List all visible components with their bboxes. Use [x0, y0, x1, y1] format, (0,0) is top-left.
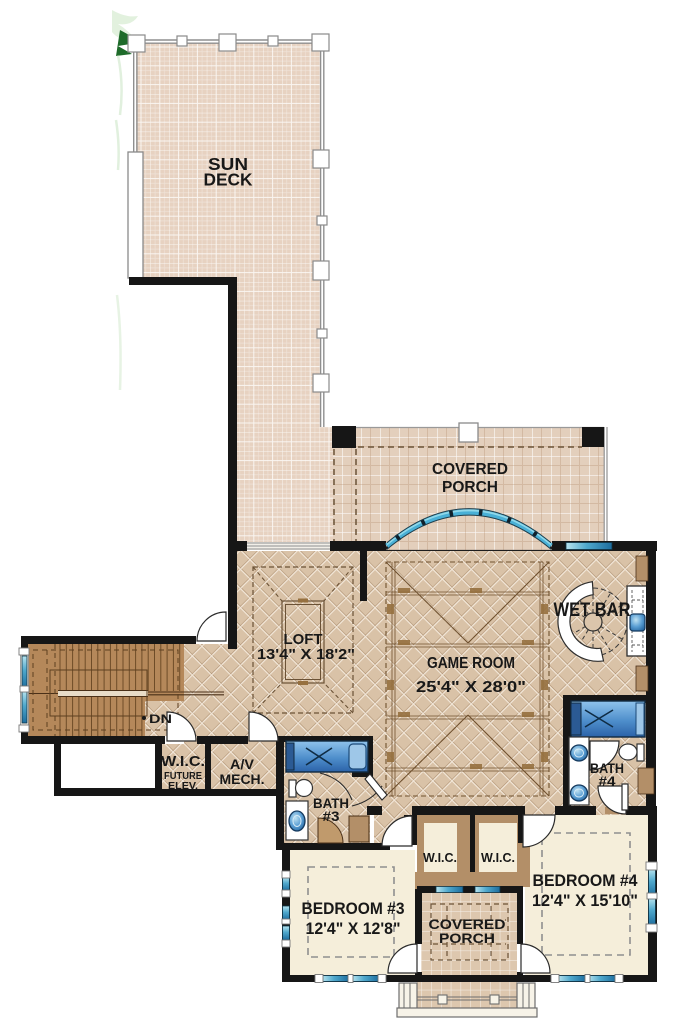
svg-text:COVERED: COVERED: [432, 461, 508, 478]
svg-text:12'4" X 15'10": 12'4" X 15'10": [532, 892, 638, 910]
svg-text:#4: #4: [599, 774, 617, 789]
svg-text:#3: #3: [323, 809, 341, 824]
svg-text:A/V: A/V: [230, 756, 255, 772]
svg-text:BEDROOM #4: BEDROOM #4: [533, 872, 639, 890]
svg-text:13'4" X 18'2": 13'4" X 18'2": [257, 646, 355, 663]
svg-text:DN: DN: [149, 712, 172, 726]
svg-text:WET BAR: WET BAR: [554, 600, 631, 621]
svg-text:W.I.C.: W.I.C.: [161, 753, 205, 770]
svg-text:W.I.C.: W.I.C.: [481, 850, 515, 865]
svg-text:GAME ROOM: GAME ROOM: [427, 655, 515, 672]
svg-text:MECH.: MECH.: [220, 771, 265, 787]
svg-text:W.I.C.: W.I.C.: [423, 850, 457, 865]
svg-text:PORCH: PORCH: [439, 930, 495, 946]
svg-text:25'4" X 28'0": 25'4" X 28'0": [416, 679, 526, 696]
svg-text:12'4" X 12'8": 12'4" X 12'8": [306, 920, 401, 938]
svg-text:DECK: DECK: [204, 170, 253, 190]
svg-text:BEDROOM #3: BEDROOM #3: [302, 900, 405, 918]
svg-text:PORCH: PORCH: [442, 479, 498, 496]
svg-text:ELEV.: ELEV.: [168, 781, 198, 792]
